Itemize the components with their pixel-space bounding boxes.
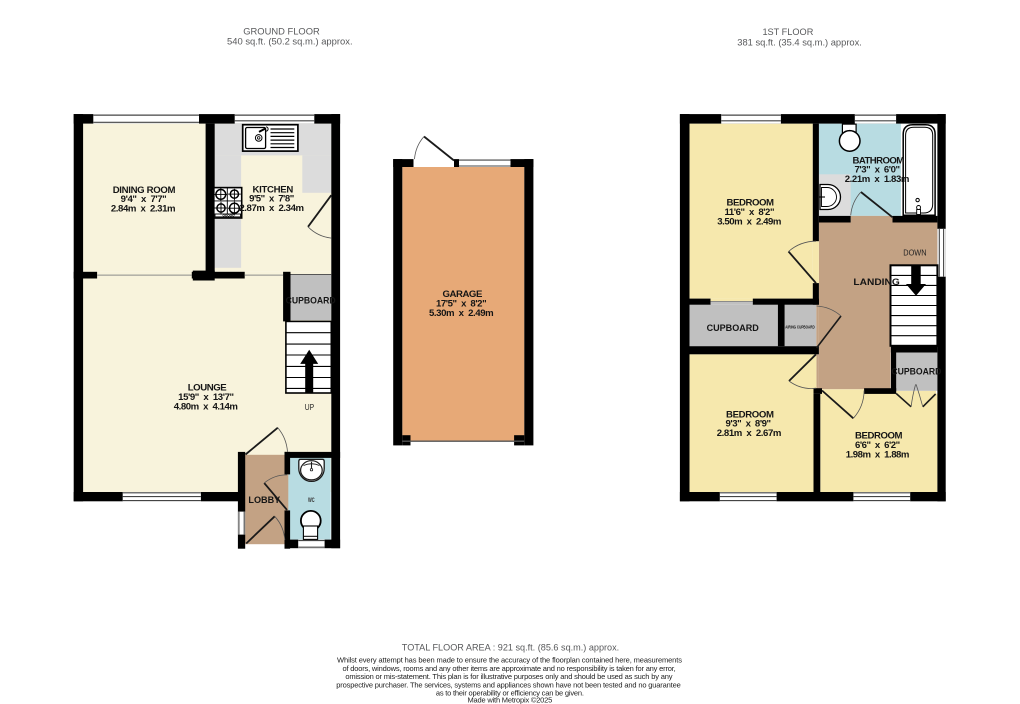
svg-text:1.98m x 1.88m: 1.98m x 1.88m: [846, 449, 910, 460]
svg-text:Made with Metropix ©2025: Made with Metropix ©2025: [468, 696, 553, 704]
svg-text:540 sq.ft. (50.2 sq.m.) approx: 540 sq.ft. (50.2 sq.m.) approx.: [227, 36, 353, 47]
svg-text:2.87m x 2.34m: 2.87m x 2.34m: [239, 203, 304, 214]
svg-text:4.80m x 4.14m: 4.80m x 4.14m: [174, 401, 238, 412]
svg-text:LANDING: LANDING: [853, 277, 899, 288]
svg-text:1ST FLOOR: 1ST FLOOR: [762, 27, 813, 38]
svg-text:CUPBOARD: CUPBOARD: [707, 322, 759, 333]
svg-text:LOBBY: LOBBY: [248, 495, 280, 505]
svg-text:WC: WC: [308, 498, 315, 504]
svg-text:2.21m x 1.83m: 2.21m x 1.83m: [845, 174, 910, 185]
svg-text:AIRING CUPBOARD: AIRING CUPBOARD: [785, 324, 815, 329]
svg-text:UP: UP: [305, 402, 315, 412]
svg-text:5.30m x 2.49m: 5.30m x 2.49m: [429, 308, 494, 319]
svg-text:3.50m x 2.49m: 3.50m x 2.49m: [717, 216, 781, 227]
svg-text:2.84m x 2.31m: 2.84m x 2.31m: [111, 203, 176, 214]
svg-text:CUPBOARD: CUPBOARD: [891, 366, 941, 377]
svg-text:TOTAL FLOOR AREA : 921 sq.ft.: TOTAL FLOOR AREA : 921 sq.ft. (85.6 sq.m…: [402, 642, 619, 653]
svg-text:CUPBOARD: CUPBOARD: [286, 295, 336, 306]
svg-text:381 sq.ft. (35.4 sq.m.) approx: 381 sq.ft. (35.4 sq.m.) approx.: [737, 37, 862, 48]
svg-text:2.81m x 2.67m: 2.81m x 2.67m: [717, 428, 782, 439]
svg-text:DOWN: DOWN: [903, 247, 926, 257]
